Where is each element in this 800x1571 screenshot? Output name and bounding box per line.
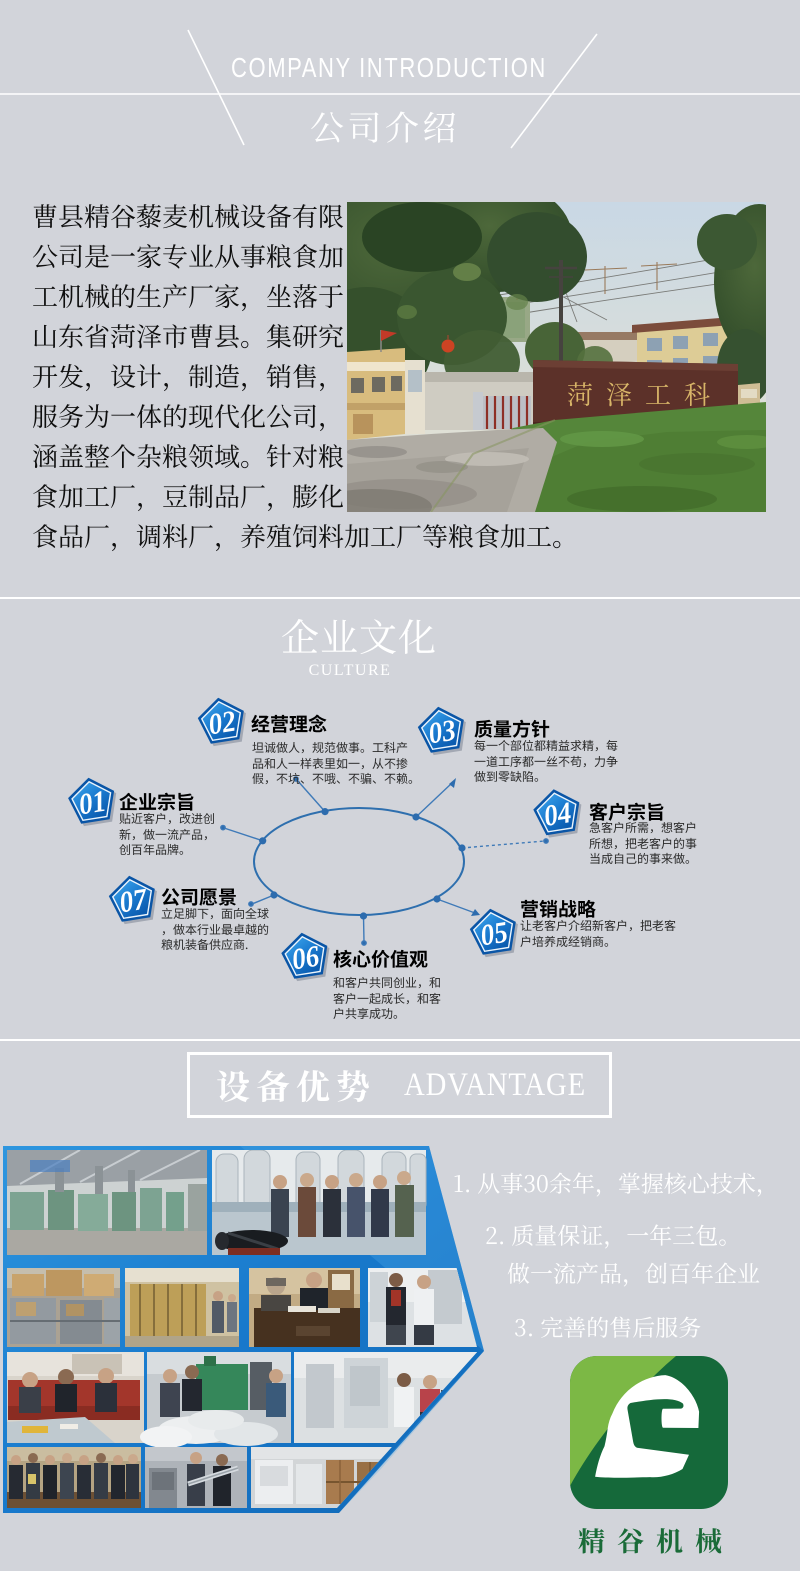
- svg-text:05: 05: [478, 916, 510, 953]
- svg-text:01: 01: [77, 785, 109, 822]
- svg-text:03: 03: [426, 714, 458, 751]
- svg-text:菏泽工科: 菏泽工科: [567, 375, 723, 412]
- svg-text:06: 06: [290, 940, 322, 977]
- svg-text:04: 04: [542, 796, 574, 833]
- svg-text:02: 02: [206, 705, 238, 742]
